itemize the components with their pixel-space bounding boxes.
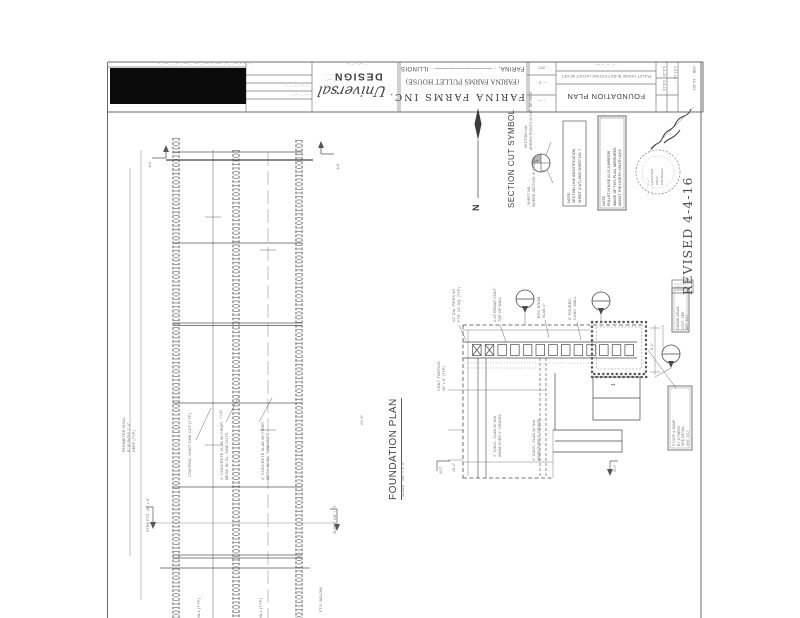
note-line: 16" x 8" (TYP.): [442, 361, 447, 391]
signature-stroke: [648, 107, 694, 153]
callout-line: TOP OF WALL: [498, 287, 503, 322]
project-subtitle: (FARINA FARMS PULLET HOUSE): [400, 77, 525, 85]
legend-top-note-2: ARROW POINTS IN DIR. OF VIEW: [529, 92, 533, 150]
note-line: DET. 5/17: [685, 307, 690, 330]
pier-row: [473, 345, 634, 356]
note-line: STOOP & RAMP: [672, 419, 677, 446]
logo-script-name: Universal: [315, 82, 390, 99]
detail-note-c: GRADE BEAM CONT. SEE DET. 5/17: [676, 307, 690, 330]
note-line: SECTION LINE IDENTIFICATION: [572, 149, 577, 203]
section-marker-right: 1/4: [336, 164, 341, 170]
note-line: PULLET HOUSE #2 IS A MIRROR: [607, 147, 612, 206]
note-line: DEEP (TYP.): [132, 416, 137, 452]
seal-cell-row: · 257 ·: [529, 65, 554, 70]
legend-circle-bottom-number: 7: [542, 170, 547, 172]
legend-bottom-note-1: SHEET NO.: [527, 185, 531, 205]
date-column-2: 1-27-16 · ··: [673, 66, 677, 85]
legend-bottom-note-2: WHERE SECTION IS DRAWN: [532, 157, 536, 207]
note-line: SHT. 5/17: [686, 419, 691, 446]
revision-strip-note: ·– ··– –· ––· ·· –·· ––– ·–· –– ··· –– ·…: [112, 62, 252, 66]
project-company: FARINA FARMS INC.: [400, 91, 525, 102]
long-plan-bottom-label-2: 8" CONC. WALL (TYP.): [259, 598, 263, 618]
legend-top-note-1: SECTION NO.: [524, 124, 528, 148]
detail-right-dim: 8'-0": [650, 342, 654, 350]
detail-left-dim: 18'-0": [452, 462, 456, 472]
detail-corner-marker: 3/17: [439, 467, 443, 474]
date-column-1: 4-4-16 · 3-8-16: [662, 66, 666, 91]
note-line: GRADE BEAM: [676, 307, 681, 330]
detail-left-note: CONT. FOOTING 16" x 8" (TYP.): [437, 361, 447, 391]
detail-plan-linework: [437, 290, 680, 480]
callout-line: SLAB 4": [542, 297, 547, 318]
redaction-box: [110, 68, 246, 104]
revision-row-2: –·– ··· –– ··: [248, 93, 310, 97]
detail-interior-callout-2: 4" CONC. SLAB W/ 6x6 WWM OVER 4" GRAVEL: [532, 418, 542, 461]
long-plan-dim-right-edge: 24'-0": [360, 415, 364, 425]
logo-phone: ··· –··– ····–: [322, 62, 392, 66]
north-arrow-icon: [475, 108, 482, 198]
long-plan-dim-right: SLOPE 1/8" / FT.: [333, 504, 337, 534]
callout-line: WWM OVER 4" GRAVEL: [537, 418, 542, 461]
job-number-cell: JOB ·· 16-103: [692, 66, 696, 91]
scanned-foundation-plan-sheet: ·– ··– –· ––· ·· –·· ––– ·–· –– ··· –– ·…: [0, 0, 800, 618]
insulation-scallop-border: [592, 322, 646, 374]
section-marker-left: 1/4: [148, 162, 153, 168]
sheet-title-main: FOUNDATION PLAN: [558, 91, 654, 100]
revised-box-note: ·· ––: [677, 285, 681, 292]
note-line: ABOUT THE NORTH-SOUTH AXIS: [618, 147, 623, 206]
detail-callout-1: 12" DIA. PIERS W/ FTG. 24" SQ. (TYP.): [452, 287, 462, 322]
sheet-title-row-1: · –· ·– ··– ––·: [560, 63, 652, 67]
signature-caption-line: –·· ··· ·–: [651, 177, 656, 196]
project-city-state: FARINA, ··–––––––––––––––·· ILLINOIS: [400, 64, 525, 71]
callout-line: MESH W/ SL. SAW CUTS: [225, 422, 230, 480]
note-box-a-text: NOTE: SECTION LINE IDENTIFICATION SHEET …: [567, 149, 583, 203]
detail-bottom-marker: 5/17: [613, 465, 617, 472]
detail-callout-3: EGG ROOM SLAB 4": [537, 297, 547, 318]
seal-cell-row: –· 3 ·: [529, 80, 554, 85]
foundation-plan-label: FOUNDATION PLAN: [388, 398, 402, 500]
seal-line: ENGINEER: [660, 168, 665, 185]
signature-caption: ··–· ···– –·· –·· ··· ·–: [646, 177, 656, 196]
long-plan-bottom-label-3: FTG. BELOW: [319, 587, 323, 612]
sheet-border: [108, 62, 704, 618]
detail-room-number: 1: [612, 383, 618, 386]
detail-note-d: STOOP & RAMP BY OTHERS SEE DETAIL SHT. 5…: [672, 419, 690, 446]
callout-line: WWM OVER 4" GRAVEL: [498, 414, 503, 457]
foundation-plan-scale: SCALE : 1/8" = 1'-0": [401, 462, 405, 497]
long-plan-callout-3: 4" CONCRETE SLAB W/ FIBER MESH W/ SL. SA…: [261, 422, 272, 480]
north-label: N: [471, 205, 482, 212]
long-plan-bottom-label-1: 8" CONC. WALL (TYP.): [197, 598, 201, 618]
detail-interior-callout-1: 4" CONC. SLAB W/ 6x6 WWM OVER 4" GRAVEL: [493, 414, 503, 457]
legend-circle-top-number: 1: [535, 160, 540, 162]
long-plan-callout-1: CONTROL JOINT SAW CUT (TYP.): [188, 413, 192, 477]
revised-date-text: REVISED 4-4-16: [681, 177, 696, 295]
long-plan-callout-2: 4" CONCRETE SLAB W/ FIBER MESH W/ SL. SA…: [220, 422, 231, 480]
long-plan-linework: [130, 138, 340, 618]
note-box-b-text: NOTE: PULLET HOUSE #2 IS A MIRROR IMAGE …: [602, 147, 624, 206]
logo-bold-name: DESIGN: [330, 70, 386, 82]
sheet-title-row-2: PULLET HOUSE BLDG FOOTING LAYOUT W/ DET.: [560, 74, 652, 78]
callout-line: CONC. WALL: [573, 296, 578, 320]
note-line: SHEET (CUT) AND SHEET NO. 7: [578, 149, 583, 203]
revision-row-1: ··– ––· ·–· ··· –: [248, 84, 310, 88]
detail-callout-4: 8" POURED CONC. WALL: [568, 296, 578, 320]
detail-callout-2: 2-#5 REBAR CONT. TOP OF WALL: [493, 287, 503, 322]
long-plan-dim-left: STEP FTG. 16" x 8": [146, 497, 150, 532]
long-plan-dim-mid: +1.50: [219, 410, 223, 419]
section-cut-symbol-title: SECTION CUT SYMBOL: [507, 109, 516, 208]
callout-line: MESH W/ SL. SAW CUTS: [266, 422, 271, 480]
long-plan-left-note: PERIMETER INSUL. R-10 RIGID 2'-0" DEEP (…: [122, 416, 137, 452]
callout-line: FTG. 24" SQ. (TYP.): [457, 287, 462, 322]
